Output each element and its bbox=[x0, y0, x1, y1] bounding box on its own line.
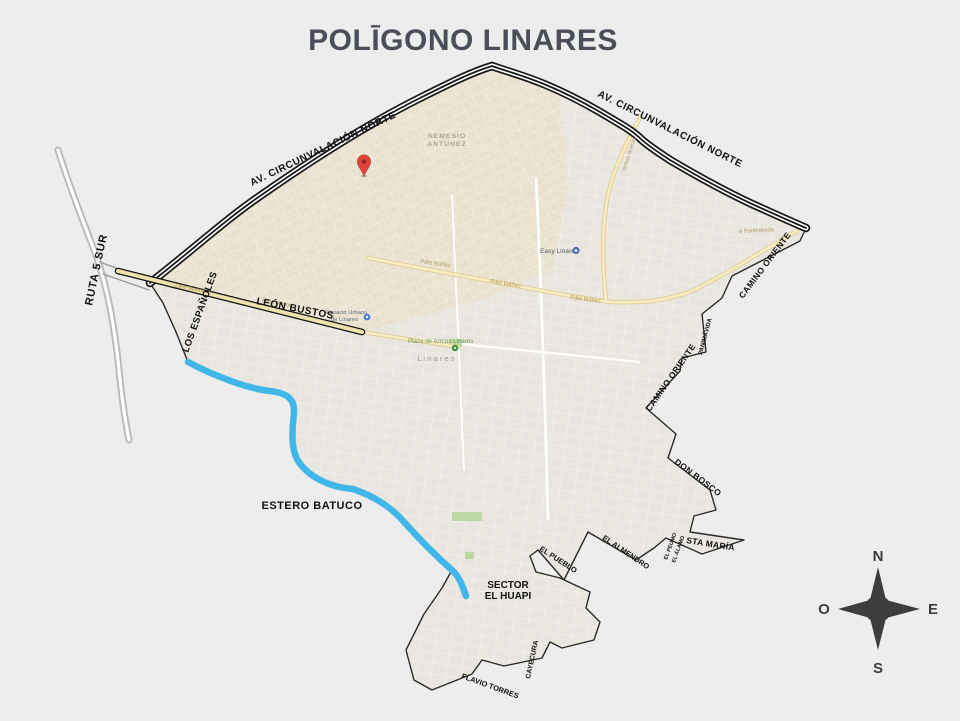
compass-s-label: S bbox=[873, 660, 883, 677]
espacio-urbano-label-2: de Linares bbox=[331, 317, 358, 323]
plaza-de-armas-label: Plaza de Armas Linares bbox=[408, 338, 473, 345]
espacio-urbano-poi-icon-dot bbox=[366, 316, 368, 318]
plaza-de-armas-poi-icon-dot bbox=[454, 347, 456, 349]
map-canvas[interactable]: POLĪGONO LINARES bbox=[0, 0, 960, 721]
easy-linares-poi-icon-dot bbox=[575, 249, 578, 252]
sector-el-huapi-label-2: EL HUAPI bbox=[485, 591, 532, 602]
nemesio-antunez-label-2: ANTUNEZ bbox=[427, 141, 466, 148]
compass-n-label: N bbox=[873, 548, 884, 565]
compass-e-label: E bbox=[928, 601, 938, 618]
map-screenshot: { "title": "POLĪGONO LINARES", "colors":… bbox=[0, 0, 960, 721]
linares-city-label: L i n a r e s bbox=[417, 354, 454, 363]
park-strip bbox=[452, 512, 482, 521]
sector-el-huapi-label-1: SECTOR bbox=[487, 580, 529, 591]
nemesio-antunez-label-1: NEMESIO bbox=[428, 133, 466, 140]
compass-o-label: O bbox=[818, 601, 830, 618]
compass-center bbox=[865, 596, 892, 623]
map-pin-hole bbox=[362, 159, 367, 164]
page-title: POLĪGONO LINARES bbox=[308, 24, 618, 57]
estero-batuco-label: ESTERO BATUCO bbox=[261, 500, 362, 512]
park-small bbox=[465, 552, 474, 559]
